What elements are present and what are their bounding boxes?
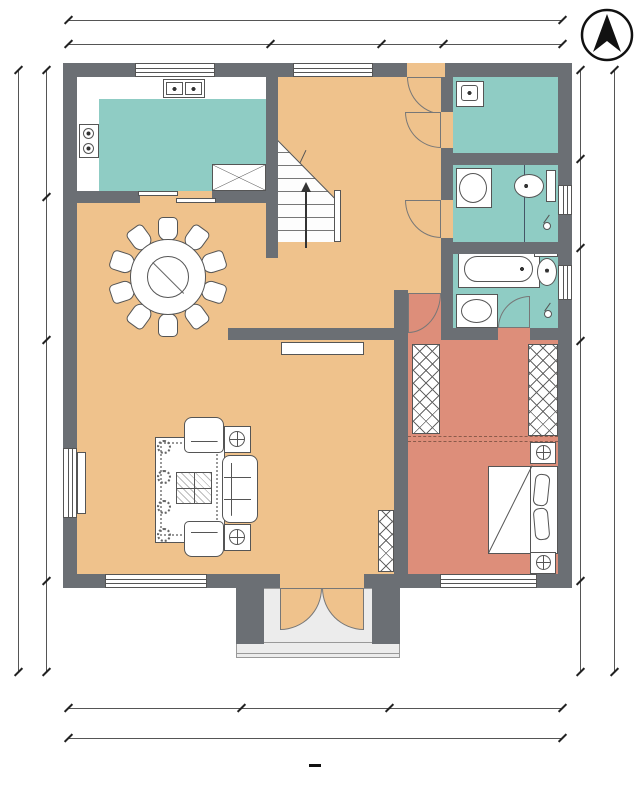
ensuite-door-opening: [498, 328, 530, 340]
stairs-up-arrowhead: [301, 182, 311, 192]
stairs-handrail: [334, 190, 341, 242]
dining-chair: [158, 217, 178, 241]
title-block: [140, 748, 500, 772]
dim-line: [68, 738, 563, 739]
dim-tick: [558, 39, 567, 48]
dashed-divider: [408, 436, 558, 437]
wall-kitchen-south: [63, 191, 140, 203]
wall-hall: [228, 328, 394, 340]
console-table: [281, 342, 364, 355]
coffee-table: [176, 472, 212, 504]
bathtub-inner: [464, 256, 533, 282]
plan-title: [309, 759, 321, 767]
stairs-up-arrow: [305, 190, 307, 248]
dim-tick: [610, 667, 619, 676]
side-table-lamp: [229, 431, 245, 447]
wash-basin: [459, 173, 487, 203]
floor-plan-canvas: [0, 0, 640, 799]
back-door-opening: [407, 63, 445, 77]
window-sill: [77, 452, 86, 514]
wall-kitchen-south: [212, 191, 278, 203]
porch-post: [236, 588, 264, 644]
dining-chair: [158, 313, 178, 337]
side-table-lamp: [229, 529, 245, 545]
entrance-opening: [280, 574, 364, 588]
entry-cabinet: [378, 510, 394, 572]
plant: [157, 528, 171, 542]
shower-head: [543, 222, 551, 230]
toilet-bowl: [537, 258, 557, 286]
porch-step: [237, 653, 399, 654]
window: [105, 574, 207, 588]
bed-headboard-line: [530, 466, 531, 554]
plant: [157, 470, 171, 484]
wardrobe: [528, 344, 558, 436]
dim-tick: [576, 667, 585, 676]
plant: [157, 440, 171, 454]
dim-tick: [42, 667, 51, 676]
sliding-door-leaf: [138, 191, 178, 196]
armchair: [184, 521, 224, 557]
dim-line: [614, 70, 615, 672]
nightstand-lamp: [536, 445, 551, 460]
dim-line: [68, 708, 563, 709]
sink-basin: [185, 82, 202, 95]
toilet-bowl: [514, 174, 544, 198]
dim-tick: [558, 703, 567, 712]
dim-line: [68, 44, 563, 45]
stove-burner: [83, 143, 94, 154]
porch-post: [372, 588, 400, 644]
window: [135, 63, 215, 77]
nightstand-lamp: [536, 555, 551, 570]
north-arrow-icon: [578, 6, 636, 64]
wall-corridor-west: [394, 290, 408, 574]
wall-right: [558, 63, 572, 588]
washing-machine-drum: [461, 85, 478, 101]
sliding-door-leaf: [176, 198, 216, 203]
window: [63, 448, 77, 518]
wash-basin: [461, 299, 492, 323]
wall-ensuite-south: [530, 328, 558, 340]
dim-tick: [558, 15, 567, 24]
dim-line: [18, 70, 19, 672]
window: [440, 574, 537, 588]
plant: [157, 500, 171, 514]
wall-ensuite-south: [441, 328, 498, 340]
laundry-door-opening: [441, 112, 453, 148]
pillow: [533, 507, 551, 540]
window: [558, 265, 572, 300]
sofa: [222, 455, 258, 523]
publicbath-door-opening: [441, 200, 453, 238]
wall-publicbath-south: [441, 242, 558, 254]
fridge: [212, 164, 266, 191]
wall-kitchen-east: [266, 77, 278, 258]
wall-laundry-south: [441, 153, 558, 165]
wall-bath-west: [441, 77, 453, 112]
dim-line: [68, 20, 563, 21]
stove-burner: [83, 128, 94, 139]
sink-basin: [166, 82, 183, 95]
shower-head: [544, 310, 552, 318]
window: [293, 63, 373, 77]
armchair: [184, 417, 224, 453]
wardrobe: [412, 344, 440, 434]
toilet-tank: [546, 170, 556, 202]
dim-tick: [14, 667, 23, 676]
dim-tick: [558, 733, 567, 742]
window: [558, 185, 572, 215]
